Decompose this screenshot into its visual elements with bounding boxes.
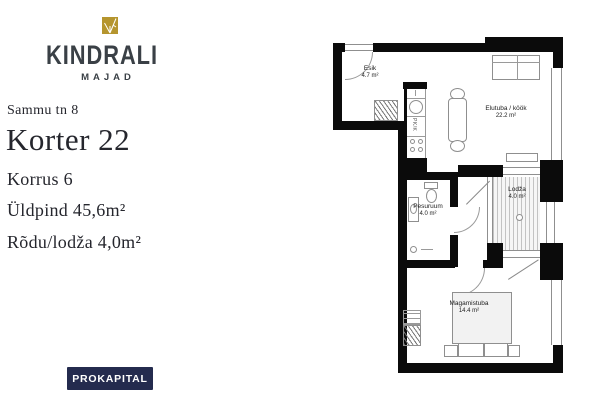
- wardrobe-section: [484, 343, 508, 357]
- wall-kitchen-left: [404, 89, 407, 158]
- wall-bathroom-top: [407, 172, 458, 180]
- wardrobe-section: [508, 345, 520, 357]
- kitchen-divider-1: [407, 98, 425, 99]
- dresser-hatched: [403, 325, 421, 346]
- kitchen-strip-edge: [425, 89, 426, 158]
- wall-living-bottom: [458, 165, 488, 177]
- wall-bedroom-top: [398, 260, 455, 268]
- wall-loggia-top-right: [540, 160, 563, 202]
- stove-burner: [410, 147, 415, 152]
- room-label-living: Elutuba / köök 22.2 m²: [468, 105, 544, 121]
- kitchen-sink: [409, 100, 423, 114]
- shower-drain-arrow: [421, 249, 433, 250]
- room-area: 14.4 m²: [437, 308, 501, 316]
- room-name: Magamistuba: [437, 300, 501, 308]
- floor-plan: PK/K Esik 4.7 m² El: [0, 0, 600, 400]
- room-name: Esik: [348, 65, 392, 73]
- room-name: Lodža: [494, 186, 540, 194]
- sofa-bench: [506, 153, 538, 162]
- room-area: 4.0 m²: [494, 194, 540, 202]
- wall-kitchen-top: [403, 82, 427, 89]
- wall-loggia-top-left: [487, 165, 503, 177]
- kitchen-counter-line: [492, 62, 540, 63]
- window-bedroom: [551, 280, 562, 345]
- wall-bedroom-top-stub: [483, 260, 503, 268]
- wall-top-mid: [373, 43, 485, 52]
- loggia-floor-drain: [516, 214, 523, 221]
- fridge-label: PK/K: [411, 118, 417, 131]
- dining-chair: [450, 140, 465, 152]
- appliance-mark: [415, 90, 416, 96]
- room-name: Pesuruum: [404, 203, 452, 211]
- entry-wardrobe: [374, 100, 398, 121]
- dresser-shelves: [403, 310, 421, 325]
- stove-burner: [418, 139, 423, 144]
- wardrobe-section: [444, 345, 458, 357]
- wall-left-entry: [333, 43, 342, 130]
- listing-sheet: { "brand": { "name": "KINDRALI", "subtit…: [0, 0, 600, 400]
- balcony-door-leaf: [508, 259, 539, 279]
- kitchen-divider-2: [407, 116, 425, 117]
- room-label-entry: Esik 4.7 m²: [348, 65, 392, 81]
- toilet-tank: [424, 182, 438, 189]
- shower-drain: [410, 246, 417, 253]
- room-area: 22.2 m²: [468, 113, 544, 121]
- window-loggia: [546, 202, 555, 243]
- wall-loggia-bottom-right: [540, 243, 563, 280]
- room-label-bedroom: Magamistuba 14.4 m²: [437, 300, 501, 316]
- room-area: 4.7 m²: [348, 73, 392, 81]
- stove-burner: [418, 147, 423, 152]
- kitchen-counter-divider: [517, 55, 518, 80]
- toilet-bowl: [426, 189, 437, 203]
- entrance-door-opening: [345, 44, 373, 51]
- bathroom-door-arc: [454, 207, 480, 233]
- wall-entry-bottom: [333, 121, 407, 130]
- wall-top-right: [485, 37, 563, 52]
- wall-right-bottom: [553, 345, 563, 373]
- loggia-top-glazing: [503, 167, 540, 175]
- room-name: Elutuba / köök: [468, 105, 544, 113]
- room-label-bathroom: Pesuruum 4.0 m²: [404, 203, 452, 219]
- room-area: 4.0 m²: [404, 211, 452, 219]
- loggia-threshold: [503, 250, 540, 258]
- loggia-door-glazing: [487, 177, 493, 243]
- wall-right-top: [553, 37, 563, 68]
- kitchen-counter: [492, 55, 540, 80]
- wall-bottom: [398, 363, 563, 373]
- dining-table: [448, 98, 467, 142]
- kitchen-divider-3: [407, 136, 425, 137]
- room-label-loggia: Lodža 4.0 m²: [494, 186, 540, 202]
- wardrobe-section: [458, 343, 484, 357]
- stove-burner: [410, 139, 415, 144]
- window-living-room: [551, 68, 562, 160]
